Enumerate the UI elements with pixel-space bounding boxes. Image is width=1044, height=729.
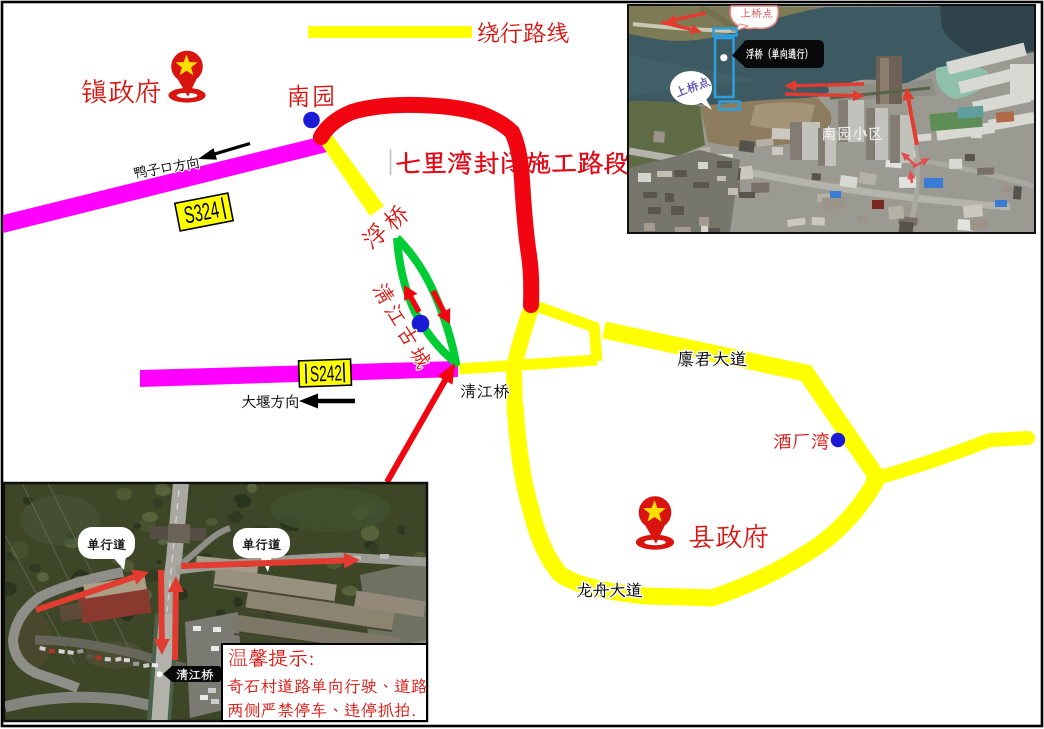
svg-text:S242: S242	[310, 360, 343, 386]
